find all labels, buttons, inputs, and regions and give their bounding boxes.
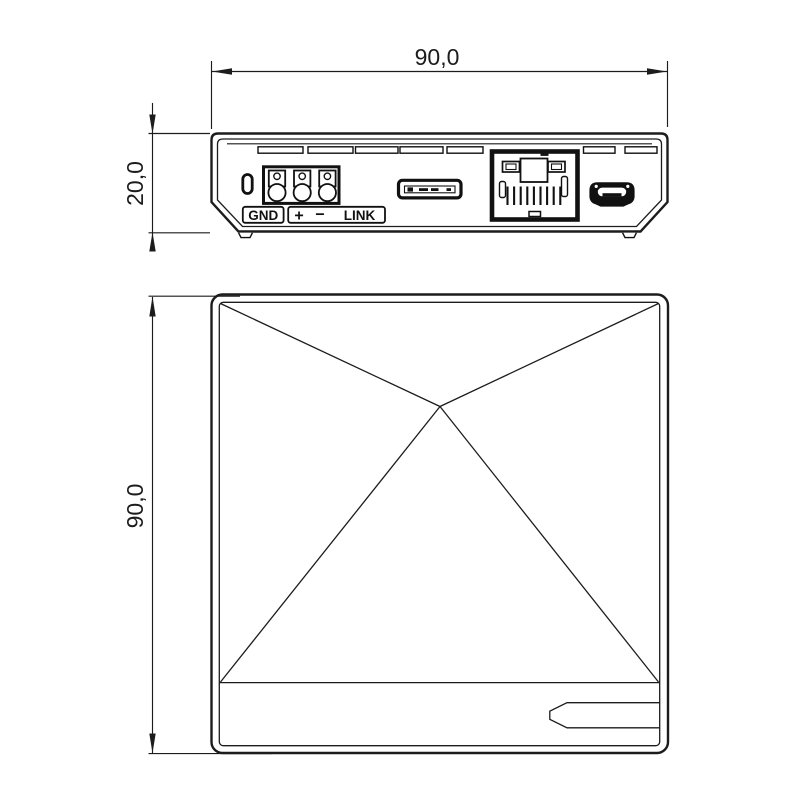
- sd-contact: [447, 188, 452, 191]
- micro-usb-tongue: [603, 193, 622, 196]
- pyramid-facet-lines: [221, 304, 659, 683]
- terminal-wire-hole: [268, 184, 285, 201]
- arrowhead-top: [149, 115, 155, 135]
- top-inner-edge: [219, 302, 659, 745]
- technical-drawing-canvas: 90,0 20,0: [0, 0, 800, 800]
- polarity-link-label-plate: + − LINK: [288, 207, 385, 225]
- dimension-top-view-height: 90,0: [122, 296, 272, 753]
- facet-line: [440, 304, 659, 407]
- arrowhead-left: [212, 68, 232, 75]
- front-view: GND + − LINK: [212, 134, 668, 238]
- rj45-led-left-inner: [506, 164, 516, 170]
- vent-slot: [356, 147, 399, 153]
- rj45-top-notch: [541, 153, 549, 156]
- terminal-3: [319, 171, 336, 202]
- terminal-screw-hole: [299, 173, 305, 179]
- terminal-screw-hole: [274, 173, 280, 179]
- rj45-side-bar-right: [562, 177, 568, 197]
- minus-label: −: [315, 207, 324, 224]
- label-tab-outline: [550, 703, 660, 728]
- dim-label-front-height: 20,0: [122, 161, 148, 206]
- arrowhead-bottom: [149, 232, 155, 251]
- top-outer-shell: [212, 295, 669, 754]
- sd-contact: [408, 187, 414, 191]
- dim-label-top-width: 90,0: [415, 44, 460, 70]
- terminal-block-icon: [264, 167, 340, 204]
- rj45-bottom-notch: [529, 212, 541, 217]
- vent-slots: [258, 147, 657, 153]
- arrowhead-bottom: [149, 734, 155, 754]
- sd-contact: [431, 188, 439, 191]
- vent-slot: [258, 147, 303, 153]
- dim-label-top-view-height: 90,0: [122, 484, 148, 529]
- foot-left: [239, 233, 253, 238]
- device-dimension-drawing: 90,0 20,0: [0, 0, 800, 800]
- vent-slot: [447, 147, 483, 153]
- rj45-led-right-inner: [552, 164, 562, 170]
- facet-line: [221, 304, 441, 407]
- arrowhead-right: [647, 68, 667, 75]
- gnd-label: GND: [248, 208, 278, 223]
- vent-slot: [625, 147, 657, 153]
- arrowhead-top: [149, 297, 155, 317]
- vent-slot: [400, 147, 443, 153]
- gnd-label-plate: GND: [243, 207, 284, 223]
- usb-corner-dot: [626, 185, 629, 188]
- usb-corner-dot: [595, 185, 598, 188]
- rj45-side-bar-left: [500, 182, 506, 198]
- terminal-wire-hole: [319, 184, 336, 201]
- facet-line: [440, 407, 659, 683]
- vent-slot: [584, 147, 616, 153]
- vent-slot: [308, 147, 353, 153]
- dimension-front-height: 20,0: [122, 103, 210, 252]
- status-led-icon: [243, 175, 252, 194]
- sd-contact: [419, 188, 428, 191]
- rj45-latch: [521, 159, 548, 183]
- plus-label: +: [294, 208, 303, 225]
- dimension-top-width: 90,0: [212, 44, 668, 129]
- terminal-screw-hole: [324, 173, 330, 179]
- terminal-1: [268, 171, 285, 202]
- ethernet-jack-icon: [492, 152, 578, 220]
- terminal-wire-hole: [294, 184, 311, 201]
- top-view: [212, 295, 669, 754]
- link-label: LINK: [344, 208, 376, 223]
- terminal-2: [294, 171, 311, 202]
- micro-usb-icon: [589, 182, 634, 206]
- facet-line: [221, 407, 441, 683]
- foot-right: [623, 233, 637, 238]
- sd-card-slot-icon: [399, 180, 462, 198]
